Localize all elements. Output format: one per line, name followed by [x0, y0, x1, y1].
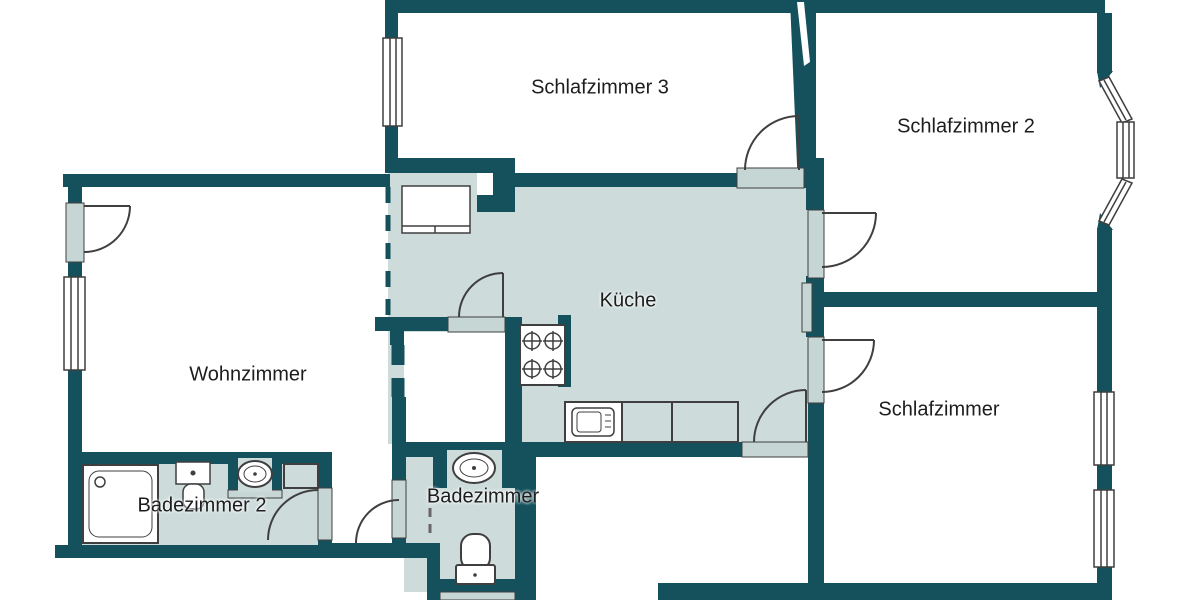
wall — [433, 450, 447, 488]
bay-window-schlafzimmer2 — [1099, 77, 1134, 225]
wall — [318, 452, 332, 488]
door-sill-kueche-south — [742, 442, 808, 457]
washing-machine-icon — [284, 464, 318, 488]
wall — [390, 317, 404, 345]
door-schlafzimmer — [822, 340, 874, 392]
wall — [1097, 307, 1112, 392]
room-label-wohnzimmer: Wohnzimmer — [189, 364, 306, 387]
door-wohnzimmer-entry — [84, 206, 130, 252]
toilet-icon — [456, 534, 495, 584]
room-label-schlafzimmer2: Schlafzimmer 2 — [897, 116, 1035, 139]
door-schlafzimmer2 — [822, 213, 876, 267]
window-schlafzimmer-right-1 — [1094, 392, 1114, 465]
wall — [505, 173, 740, 187]
wall-notch — [477, 173, 493, 195]
wall — [228, 452, 238, 496]
window-schlafzimmer-right-2 — [1094, 490, 1114, 567]
wall — [812, 0, 1105, 13]
wall — [502, 442, 742, 457]
door-sill-schlafzimmer — [808, 337, 824, 403]
wall — [392, 397, 406, 480]
wall — [68, 174, 82, 203]
window-wohnzimmer-left — [64, 277, 85, 370]
wall — [1097, 13, 1112, 73]
door-sill-schlafzimmer3 — [737, 168, 804, 188]
door-sill-wohnzimmer — [66, 203, 84, 262]
small-room-floor — [404, 332, 505, 442]
wall — [272, 452, 282, 496]
wall — [658, 583, 1112, 600]
wall — [1097, 465, 1112, 490]
wall — [427, 543, 440, 600]
window-badezimmer-bottom — [440, 592, 515, 600]
door-sill-kueche-west — [448, 317, 505, 332]
wall — [515, 442, 536, 600]
wall — [63, 174, 390, 187]
room-label-schlafzimmer: Schlafzimmer — [878, 399, 999, 422]
wall — [55, 545, 332, 558]
door-sill-badezimmer — [392, 480, 406, 538]
wall — [392, 538, 406, 558]
room-label-badezimmer2: Badezimmer 2 — [138, 495, 267, 518]
wall — [447, 442, 502, 450]
room-label-badezimmer: Badezimmer — [427, 486, 539, 509]
door-sill-schlafzimmer2 — [808, 210, 824, 278]
stove-icon — [520, 325, 565, 385]
wall — [824, 292, 1105, 307]
flur-floor — [536, 457, 808, 585]
wall — [385, 0, 795, 13]
room-label-schlafzimmer3: Schlafzimmer 3 — [531, 77, 669, 100]
wall — [375, 317, 448, 331]
kitchen-sink-counter-icon — [565, 402, 738, 442]
wall — [808, 403, 824, 585]
door-sill-badezimmer2 — [318, 488, 332, 540]
kitchen-cabinet-icon — [402, 186, 470, 233]
wall — [68, 262, 82, 277]
washbasin-icon — [238, 458, 272, 492]
washbasin-icon — [453, 453, 495, 483]
wall — [806, 186, 824, 210]
wall — [385, 0, 398, 40]
schlafzimmer3-floor-edge — [507, 150, 739, 173]
wall — [477, 195, 515, 212]
wall — [330, 543, 430, 558]
wall — [385, 158, 507, 173]
floorplan-canvas: Schlafzimmer 3 Schlafzimmer 2 Küche Wohn… — [0, 0, 1200, 600]
wall — [68, 370, 82, 558]
room-label-kueche: Küche — [600, 290, 657, 313]
window-schlafzimmer3-left — [383, 38, 402, 126]
radiator-icon — [802, 283, 812, 332]
door-schlafzimmer3 — [745, 116, 799, 170]
